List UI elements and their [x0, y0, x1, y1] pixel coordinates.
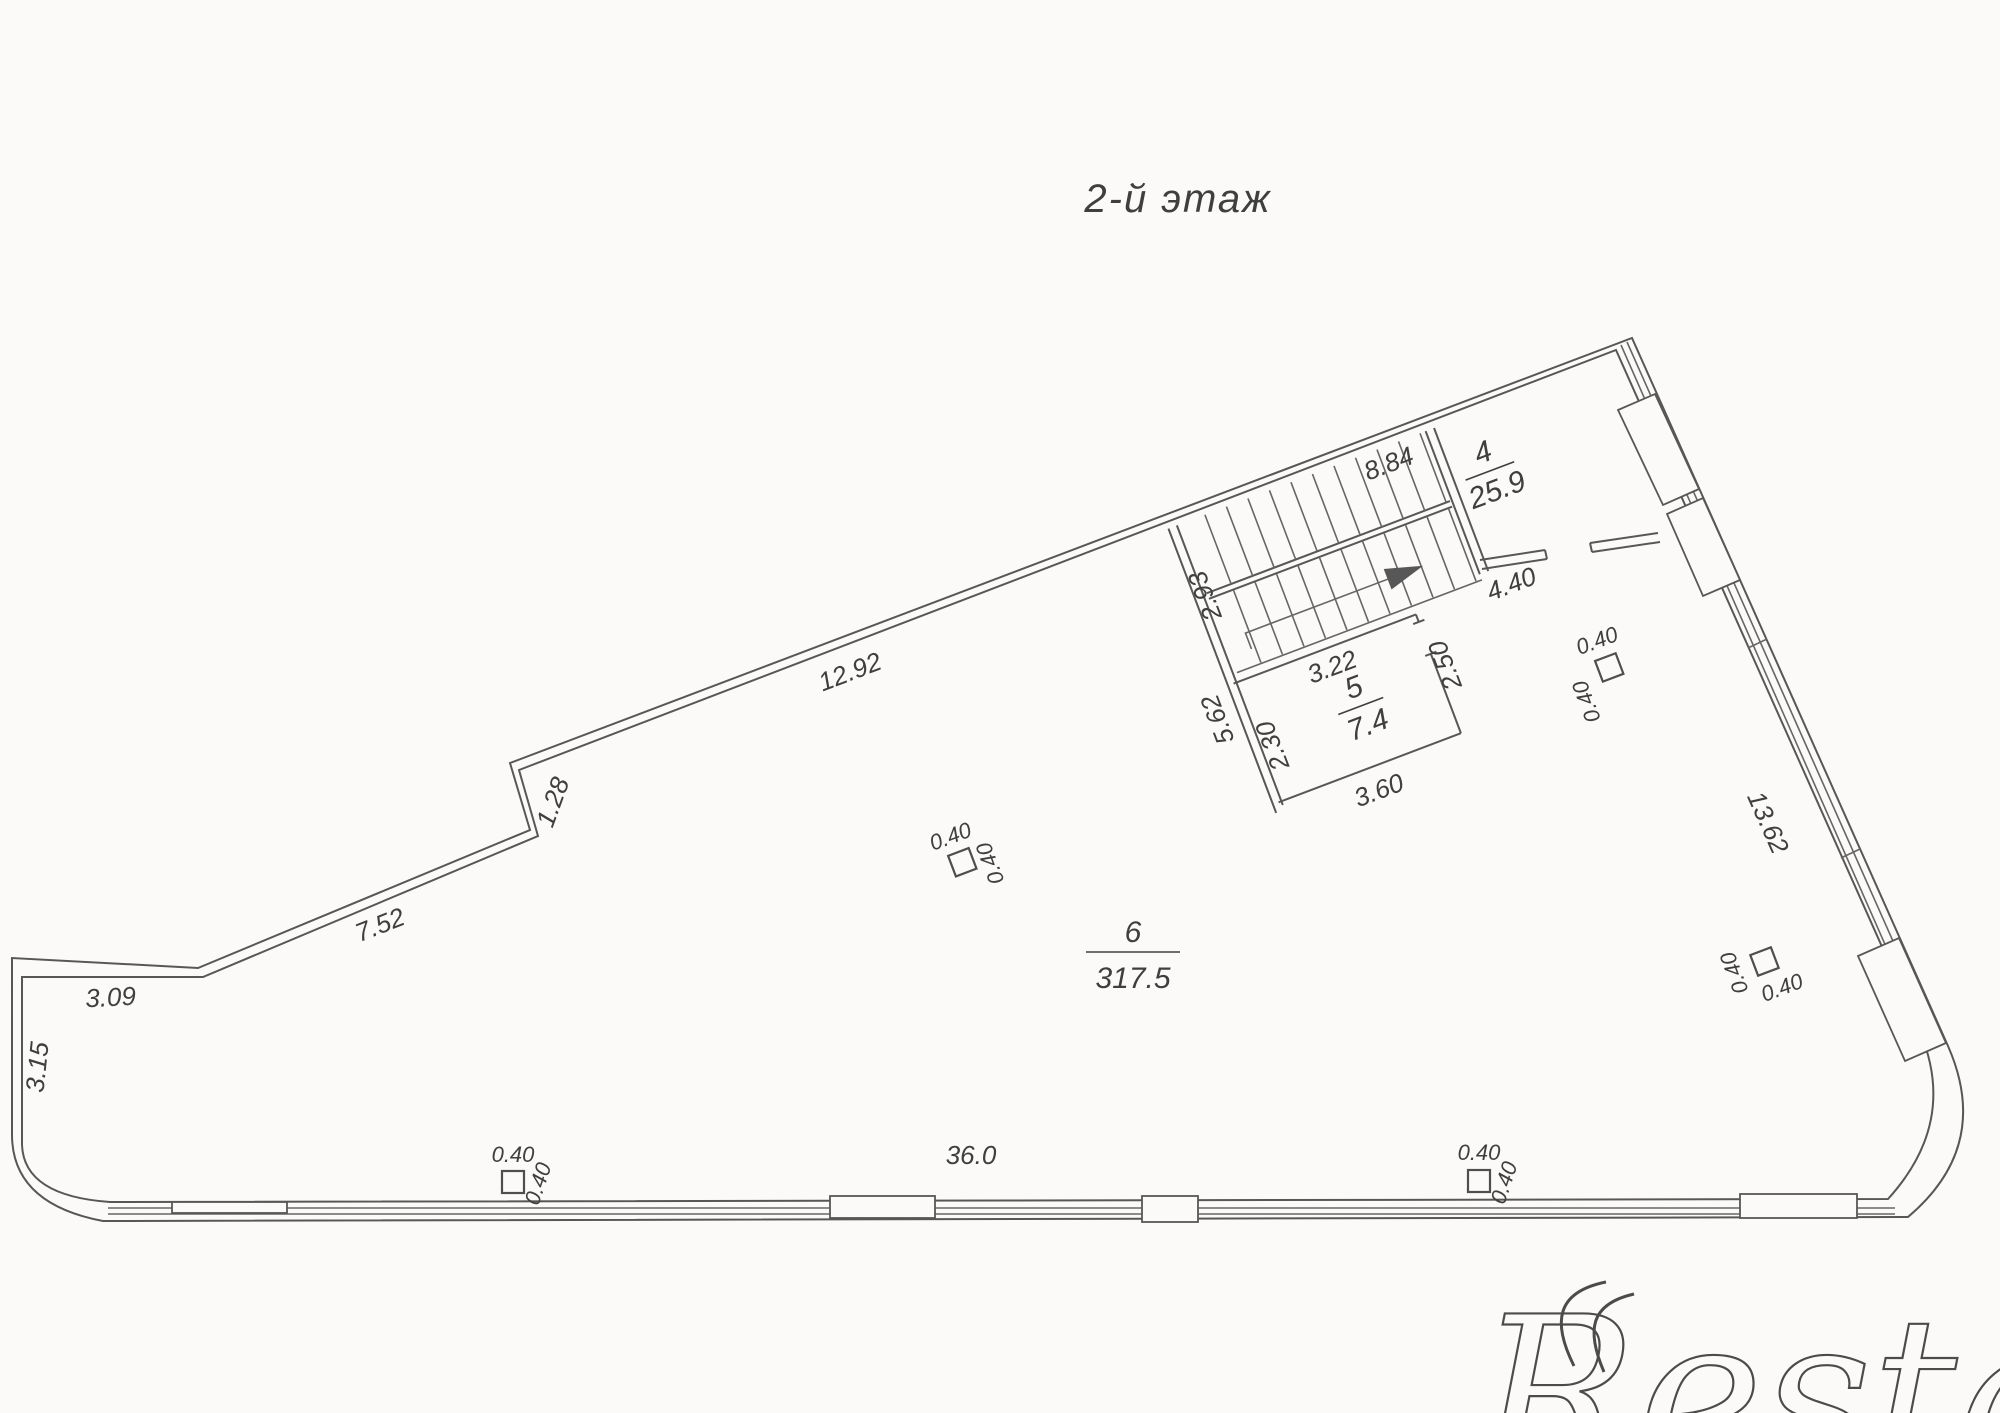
- right-window-box-3: [1858, 938, 1946, 1061]
- page-title: 2-й этаж: [1083, 177, 1271, 221]
- dim-column-a-2: 0.40: [1567, 677, 1606, 727]
- bottom-columns: 0.40 0.40 0.40 0.40: [492, 1140, 1523, 1208]
- dim-left-side: 3.15: [19, 1040, 54, 1094]
- floor-plan-drawing: 8.84 2.93 5.62 3.22 2.50 2.30 3.60 4.40 …: [0, 0, 2000, 1413]
- right-window-box-2: [1667, 498, 1740, 596]
- right-band-windows: [1618, 394, 1946, 1061]
- room4-area: 25.9: [1463, 464, 1531, 516]
- dim-column-c-1: 0.40: [1715, 948, 1754, 998]
- room6-number: 6: [1125, 916, 1142, 949]
- bottom-pier-3: [1740, 1194, 1857, 1218]
- room5-number: 5: [1340, 669, 1368, 706]
- column-right-side: [1750, 947, 1778, 975]
- dim-right-side: 13.62: [1741, 787, 1795, 859]
- right-window-box-1: [1618, 394, 1699, 505]
- dim-left-top: 3.09: [84, 981, 136, 1014]
- floor-plan-page: 8.84 2.93 5.62 3.22 2.50 2.30 3.60 4.40 …: [0, 0, 2000, 1413]
- perimeter-dimensions: 12.92 1.28 7.52 3.09 3.15 36.0 13.62: [19, 646, 1795, 1170]
- dim-column-e-1: 0.40: [1458, 1140, 1502, 1165]
- dim-column-b-1: 0.40: [926, 817, 976, 856]
- dim-room5-bottom: 3.60: [1350, 767, 1408, 813]
- column-room4-side: [1595, 653, 1623, 681]
- inner-wall-line: [22, 350, 1933, 1202]
- room4-number: 4: [1469, 434, 1496, 471]
- room6-area: 317.5: [1095, 962, 1170, 995]
- dim-room5-right: 2.50: [1422, 636, 1469, 695]
- dim-column-b-2: 0.40: [971, 838, 1010, 888]
- room4-bottom-wall-right: [1590, 533, 1660, 552]
- room4-label: 4 25.9: [1449, 427, 1531, 516]
- watermark: Restate: [1474, 1271, 2000, 1413]
- room6-label: 6 317.5: [1086, 916, 1180, 995]
- dim-bottom: 36.0: [946, 1140, 997, 1170]
- dim-room5-left: 2.30: [1249, 716, 1296, 775]
- interior-rotated: 8.84 2.93 5.62 3.22 2.50 2.30 3.60 4.40 …: [856, 375, 1807, 1263]
- bottom-pier-1: [830, 1196, 935, 1218]
- stair-arrow-head: [1384, 555, 1427, 589]
- watermark-text: Restate: [1474, 1271, 2000, 1413]
- bottom-window-mullion: [172, 1202, 287, 1213]
- dim-lower-slope: 7.52: [351, 901, 410, 948]
- bottom-glazing-lines: [108, 1208, 1895, 1214]
- column-bottom-right: [1468, 1170, 1490, 1192]
- bottom-pier-2: [1142, 1196, 1198, 1222]
- stair-treads-lower: [1234, 509, 1476, 662]
- column-bottom-left: [502, 1171, 524, 1193]
- room4-bottom-wall: [1480, 533, 1660, 569]
- dim-step: 1.28: [530, 773, 576, 831]
- dim-column-d-1: 0.40: [492, 1142, 536, 1167]
- dim-stair-width: 2.93: [1182, 567, 1229, 626]
